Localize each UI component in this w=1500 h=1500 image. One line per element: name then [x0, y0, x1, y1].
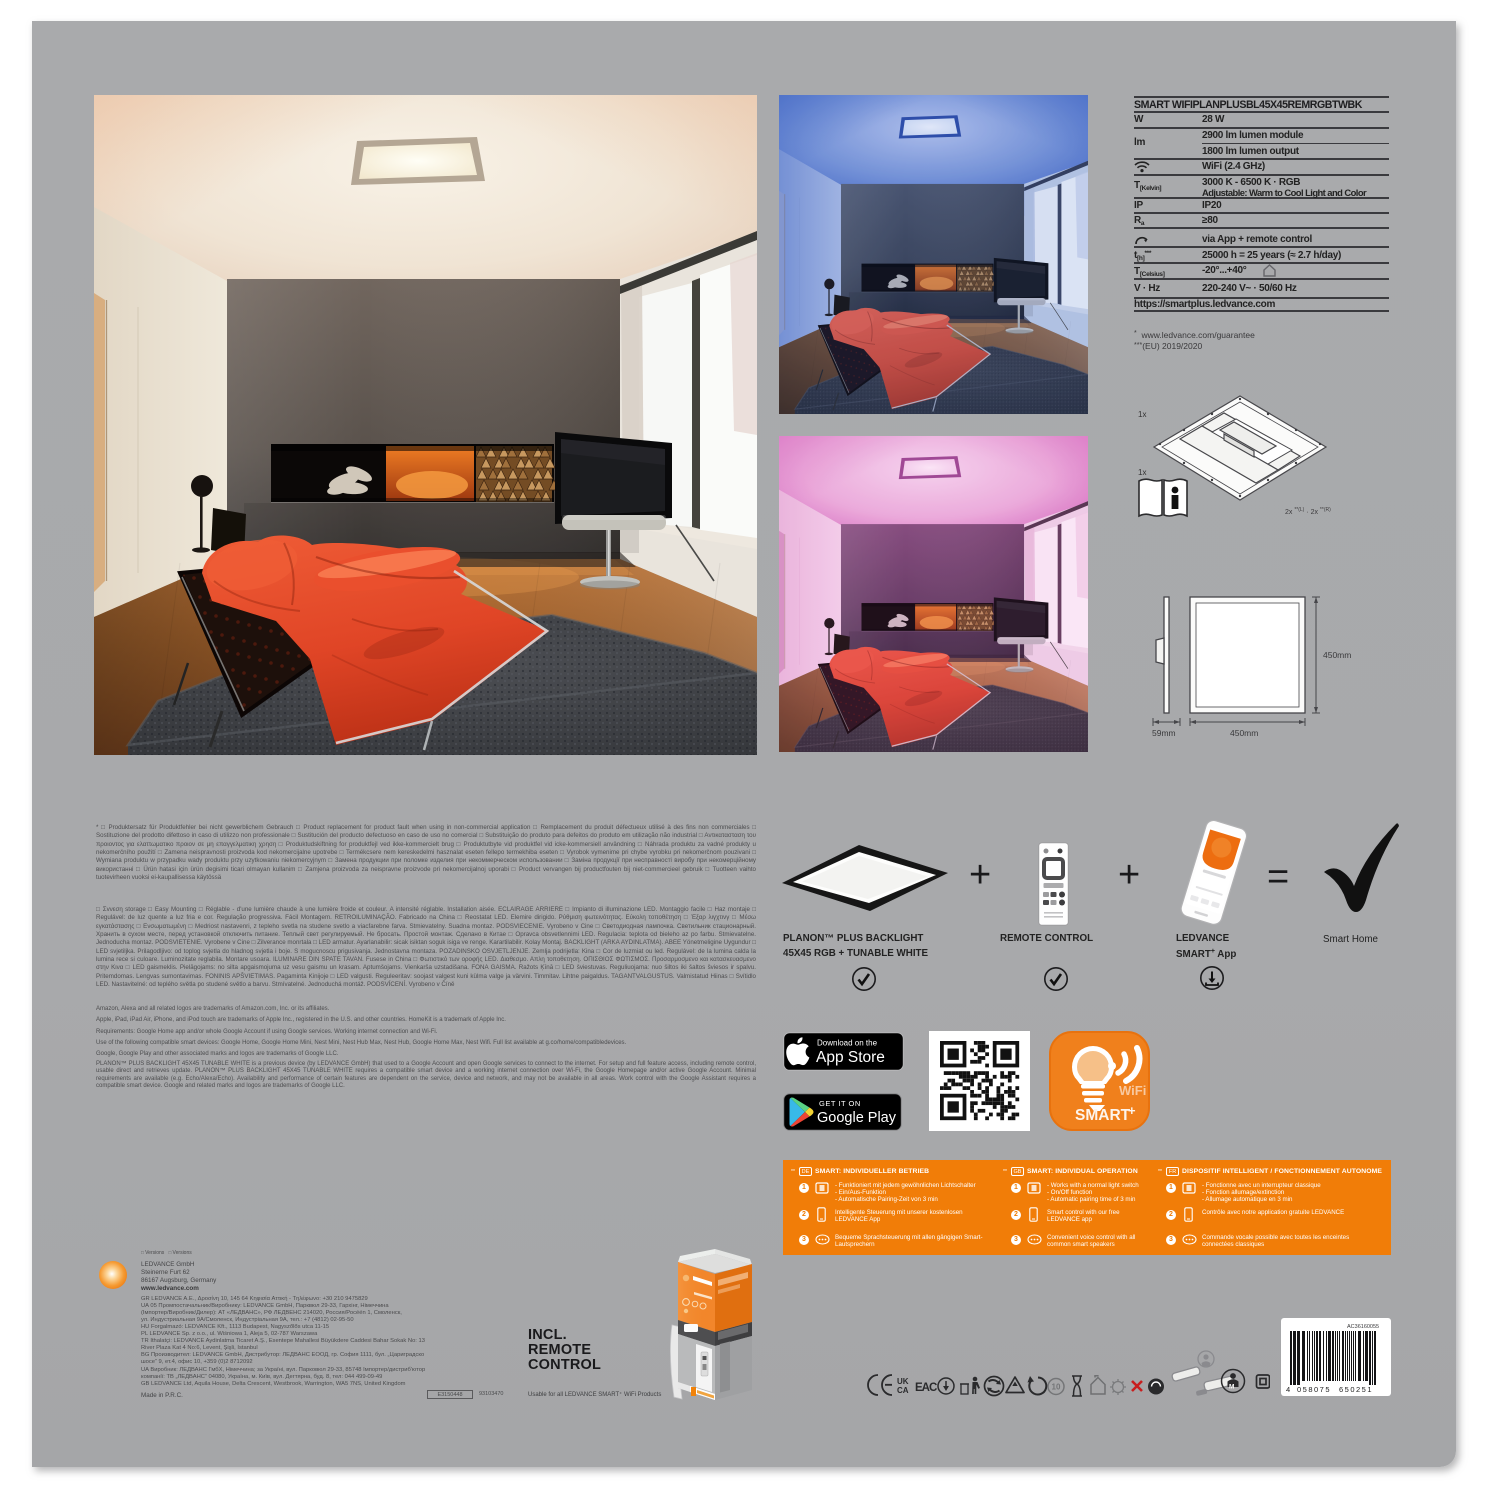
svg-text:Google Play: Google Play	[817, 1110, 897, 1126]
svg-text:UK: UK	[897, 1377, 909, 1386]
svg-text:GET IT ON: GET IT ON	[819, 1099, 861, 1108]
svg-text:SMART: SMART	[1075, 1107, 1131, 1124]
svg-text:App Store: App Store	[816, 1049, 885, 1066]
svg-text:AC36160055: AC36160055	[1347, 1324, 1379, 1330]
svg-text:WiFi: WiFi	[1119, 1083, 1146, 1098]
svg-text:CA: CA	[897, 1386, 909, 1395]
svg-text:Download on the: Download on the	[817, 1039, 878, 1048]
svg-text:058075: 058075	[1297, 1385, 1331, 1394]
svg-text:450mm: 450mm	[1230, 728, 1258, 738]
svg-text:M: M	[1229, 1384, 1234, 1391]
svg-text:EАC: EАC	[915, 1382, 937, 1394]
svg-text:450mm: 450mm	[1323, 650, 1351, 660]
svg-text:4: 4	[1286, 1385, 1290, 1394]
svg-text:10: 10	[1052, 1383, 1061, 1392]
svg-text:+: +	[1128, 1103, 1136, 1118]
svg-text:59mm: 59mm	[1152, 728, 1176, 738]
svg-text:650251: 650251	[1339, 1385, 1373, 1394]
